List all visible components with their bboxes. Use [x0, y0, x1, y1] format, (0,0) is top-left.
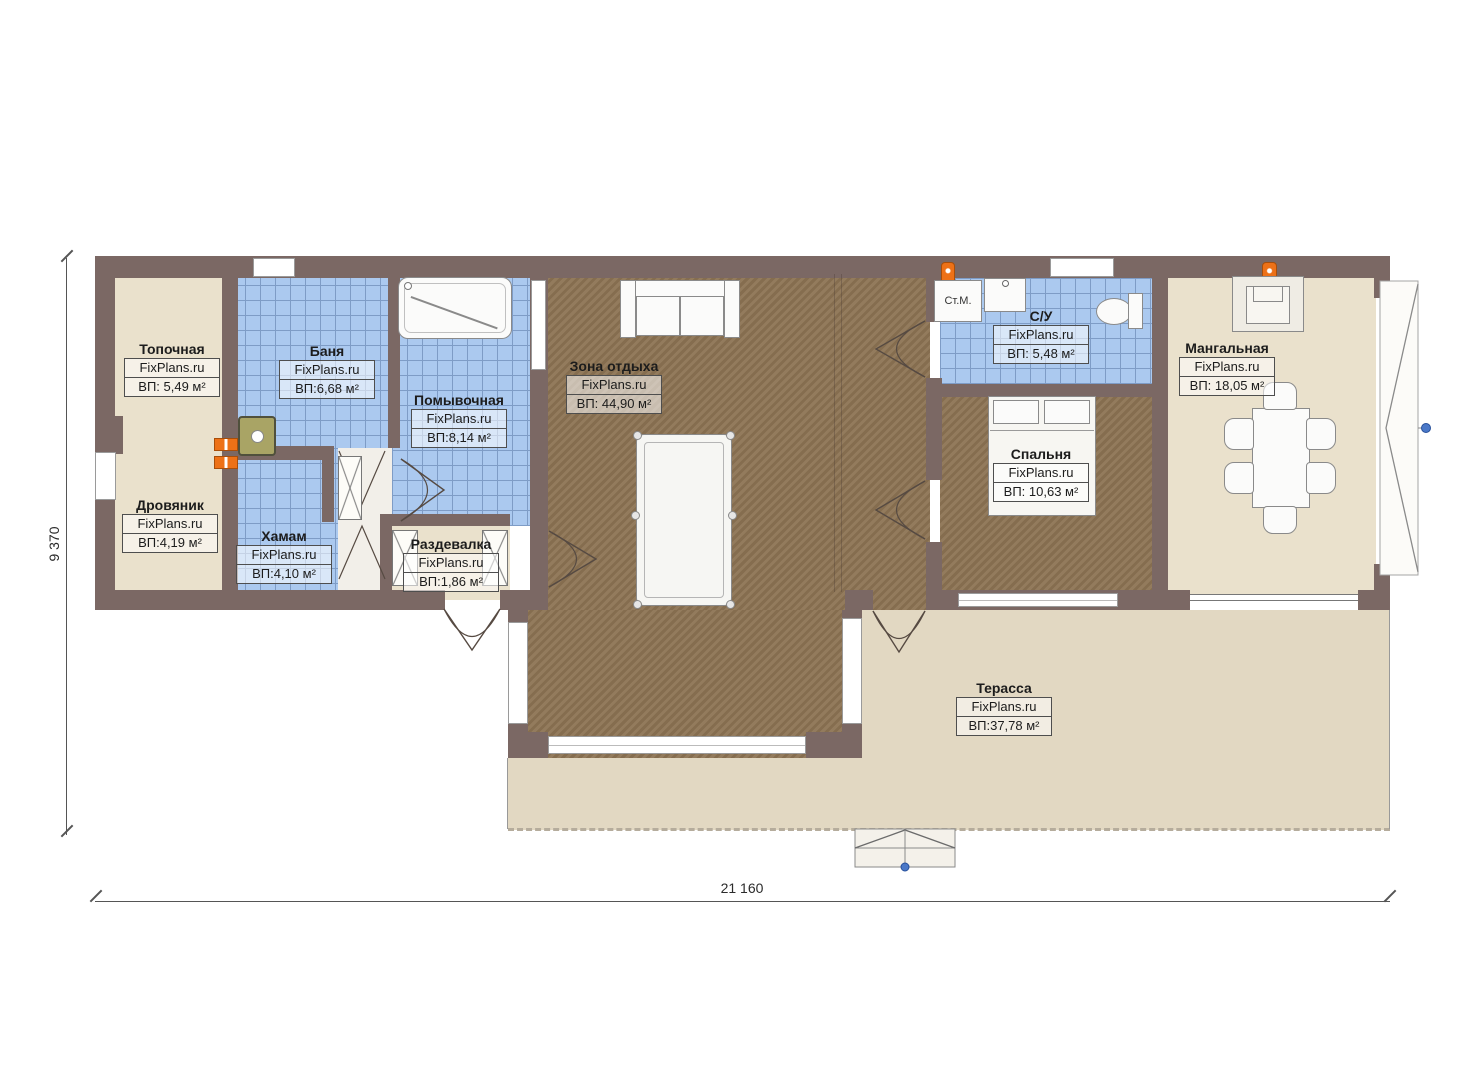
terrace-edge-right — [1389, 610, 1390, 829]
faucet-icon — [1002, 280, 1009, 287]
wall-zona-bottom-pier-right — [806, 732, 862, 758]
dimension-height-label: 9 370 — [46, 504, 62, 584]
wall-passage — [322, 460, 334, 522]
room-label-banya: Баня FixPlans.ru ВП:6,68 м² — [279, 343, 375, 399]
window-zona-east-lower — [842, 618, 862, 724]
sofa-armrest — [724, 280, 740, 338]
room-name: Терасса — [976, 680, 1032, 696]
bbq-grill-firebox — [1253, 286, 1283, 302]
watermark-badge: FixPlans.ru — [122, 514, 218, 534]
area-badge: ВП:8,14 м² — [411, 428, 507, 448]
watermark-badge: FixPlans.ru — [993, 463, 1089, 483]
pool-table — [636, 434, 732, 606]
watermark-badge: FixPlans.ru — [124, 358, 220, 378]
door-razdevalka-zona — [546, 528, 604, 590]
room-name: Зона отдыха — [570, 358, 659, 374]
sofa-seat — [636, 296, 680, 336]
sink — [984, 278, 1026, 312]
mangalnaya-open-edge — [1190, 594, 1358, 601]
watermark-badge: FixPlans.ru — [411, 409, 507, 429]
dimension-width-label: 21 160 — [642, 880, 842, 896]
pillow — [993, 400, 1039, 424]
window-zona-west-upper — [531, 280, 546, 370]
chair — [1306, 462, 1336, 494]
ceiling-beam-line — [841, 274, 842, 592]
sauna-stove — [238, 416, 276, 456]
washing-machine-label: Ст.М. — [944, 295, 971, 307]
room-label-razdevalka: Раздевалка FixPlans.ru ВП:1,86 м² — [403, 536, 499, 592]
wall-mangalnaya-pier-left — [1152, 590, 1190, 610]
area-badge: ВП:1,86 м² — [403, 572, 499, 592]
faucet-icon — [404, 282, 412, 290]
floorplan-canvas: Ст.М. Топочная FixPlans.ru — [0, 0, 1474, 1080]
area-badge: ВП: 5,49 м² — [124, 377, 220, 397]
dimension-tick — [61, 250, 74, 263]
pool-pocket — [633, 431, 642, 440]
flue-marker — [214, 456, 238, 469]
area-badge: ВП: 5,48 м² — [993, 344, 1089, 364]
toilet-bowl — [1096, 298, 1132, 325]
door-pomyvochnaya — [398, 456, 452, 524]
area-badge: ВП: 10,63 м² — [993, 482, 1089, 502]
room-label-pomyvochnaya: Помывочная FixPlans.ru ВП:8,14 м² — [411, 392, 507, 448]
pillow — [1044, 400, 1090, 424]
wall-left-stub — [115, 416, 123, 454]
area-badge: ВП:6,68 м² — [279, 379, 375, 399]
area-badge: ВП:4,19 м² — [122, 533, 218, 553]
window-spalnya-bottom — [958, 593, 1118, 607]
terrace-edge-left — [507, 758, 508, 829]
room-name: Спальня — [1011, 446, 1071, 462]
chair — [1306, 418, 1336, 450]
window-su-top — [1050, 258, 1114, 277]
dimension-line-vertical — [66, 258, 67, 835]
window-left-wall — [95, 452, 116, 500]
sofa-back — [620, 280, 740, 297]
chair — [1224, 462, 1254, 494]
window-zona-west-lower — [508, 622, 528, 724]
pool-pocket — [726, 431, 735, 440]
wall-corridor-pier — [845, 590, 873, 610]
bathtub — [398, 277, 512, 339]
room-label-topochnaya: Топочная FixPlans.ru ВП: 5,49 м² — [124, 341, 220, 397]
area-badge: ВП: 44,90 м² — [566, 394, 662, 414]
room-name: С/У — [1030, 308, 1053, 324]
room-name: Топочная — [139, 341, 204, 357]
window-banya-top — [253, 258, 295, 277]
watermark-badge: FixPlans.ru — [236, 545, 332, 565]
door-khamam-passage — [336, 520, 388, 582]
room-label-khamam: Хамам FixPlans.ru ВП:4,10 м² — [236, 528, 332, 584]
door-su — [866, 318, 928, 380]
flue-marker — [214, 438, 238, 451]
sofa-armrest — [620, 280, 636, 338]
shower-screen — [338, 456, 362, 520]
area-badge: ВП:37,78 м² — [956, 716, 1052, 736]
window-mullion — [959, 600, 1117, 601]
room-name: Мангальная — [1185, 340, 1269, 356]
floor-terrace-strip — [508, 758, 862, 830]
pool-pocket — [633, 600, 642, 609]
dimension-line-horizontal — [95, 901, 1390, 902]
pool-pocket — [631, 511, 640, 520]
pool-table-inner — [644, 442, 724, 598]
ceiling-beam-line — [834, 274, 835, 592]
room-name: Помывочная — [414, 392, 504, 408]
pool-pocket — [726, 600, 735, 609]
watermark-badge: FixPlans.ru — [279, 360, 375, 380]
wall-mangalnaya-west — [1152, 256, 1168, 590]
room-label-su: С/У FixPlans.ru ВП: 5,48 м² — [993, 308, 1089, 364]
stove-lid-icon — [251, 430, 264, 443]
blanket-line — [990, 430, 1094, 431]
watermark-badge: FixPlans.ru — [993, 325, 1089, 345]
door-terrace — [870, 608, 928, 658]
watermark-badge: FixPlans.ru — [956, 697, 1052, 717]
dimension-tick — [1384, 890, 1397, 903]
sofa-seat — [680, 296, 724, 336]
room-name: Дровяник — [136, 497, 204, 513]
room-name: Раздевалка — [411, 536, 492, 552]
folding-glass-door — [1378, 280, 1432, 576]
window-zona-bottom — [548, 736, 806, 754]
wall-left — [95, 256, 115, 610]
area-badge: ВП: 18,05 м² — [1179, 376, 1275, 396]
chair — [1224, 418, 1254, 450]
door-spalnya — [866, 478, 928, 542]
room-name: Хамам — [261, 528, 306, 544]
entrance-steps — [854, 828, 956, 874]
area-badge: ВП:4,10 м² — [236, 564, 332, 584]
watermark-badge: FixPlans.ru — [403, 553, 499, 573]
room-name: Баня — [310, 343, 344, 359]
room-label-mangalnaya: Мангальная FixPlans.ru ВП: 18,05 м² — [1179, 340, 1275, 396]
toilet-tank — [1128, 293, 1143, 329]
floor-terrace — [862, 610, 1390, 830]
dining-table — [1252, 408, 1310, 508]
dimension-tick — [61, 825, 74, 838]
washing-machine: Ст.М. — [934, 280, 982, 322]
room-label-drovyanik: Дровяник FixPlans.ru ВП:4,19 м² — [122, 497, 218, 553]
room-label-terrassa: Терасса FixPlans.ru ВП:37,78 м² — [956, 680, 1052, 736]
door-razdevalka-exit — [441, 606, 503, 656]
room-label-zona-otdykha: Зона отдыха FixPlans.ru ВП: 44,90 м² — [566, 358, 662, 414]
window-mullion — [549, 745, 805, 746]
room-label-spalnya: Спальня FixPlans.ru ВП: 10,63 м² — [993, 446, 1089, 502]
bbq-grill — [1232, 276, 1304, 332]
wall-zona-bottom-pier-left — [508, 732, 548, 758]
wall-bath-bottom-a — [95, 590, 445, 610]
watermark-badge: FixPlans.ru — [566, 375, 662, 395]
watermark-badge: FixPlans.ru — [1179, 357, 1275, 377]
pool-pocket — [728, 511, 737, 520]
chair — [1263, 506, 1297, 534]
